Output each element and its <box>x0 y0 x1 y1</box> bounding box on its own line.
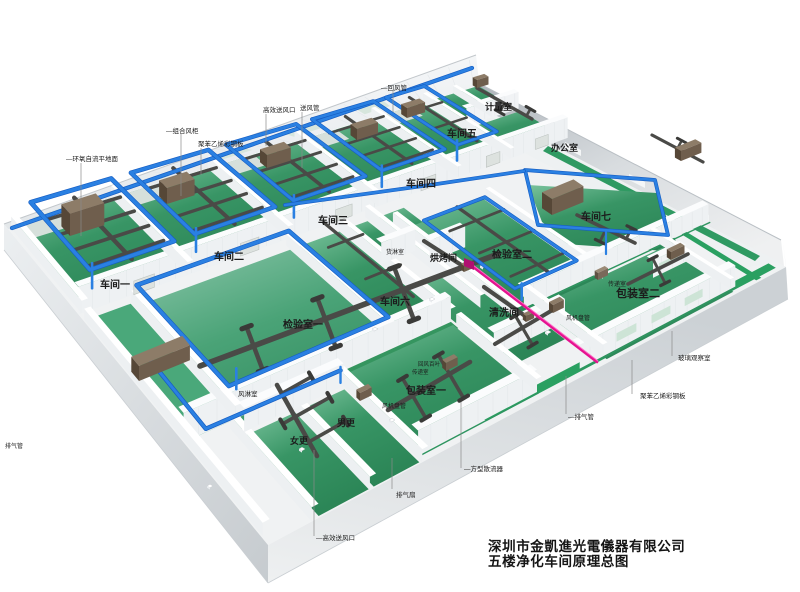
svg-text:车间二: 车间二 <box>214 250 244 263</box>
svg-text:深圳市金凱進光電儀器有限公司: 深圳市金凱進光電儀器有限公司 <box>488 538 685 554</box>
svg-text:—回风管: —回风管 <box>381 83 408 92</box>
svg-text:车间三: 车间三 <box>318 214 348 227</box>
svg-text:包装室二: 包装室二 <box>615 286 660 300</box>
svg-text:回风百叶: 回风百叶 <box>418 360 441 368</box>
svg-text:办公室: 办公室 <box>551 142 578 153</box>
svg-text:男更: 男更 <box>337 418 356 428</box>
svg-text:女更: 女更 <box>290 435 309 446</box>
svg-text:车间四: 车间四 <box>406 177 436 190</box>
svg-text:—排气管: —排气管 <box>568 412 595 421</box>
svg-text:检验室二: 检验室二 <box>492 248 532 261</box>
svg-text:风机盘管: 风机盘管 <box>382 402 406 410</box>
svg-text:排气扇: 排气扇 <box>396 490 416 499</box>
svg-text:包装室一: 包装室一 <box>406 384 446 397</box>
svg-text:风机盘管: 风机盘管 <box>566 314 590 322</box>
svg-text:烘烤间: 烘烤间 <box>430 252 457 263</box>
svg-text:车间六: 车间六 <box>380 295 410 308</box>
svg-text:传递室: 传递室 <box>608 280 626 288</box>
svg-text:排气管: 排气管 <box>5 442 23 450</box>
svg-text:车间五: 车间五 <box>447 127 477 140</box>
svg-text:货淋室: 货淋室 <box>386 248 404 256</box>
svg-text:风淋室: 风淋室 <box>238 389 258 398</box>
svg-text:计量室: 计量室 <box>485 101 512 112</box>
svg-text:玻璃观察室: 玻璃观察室 <box>678 353 711 362</box>
svg-text:五楼净化车间原理总图: 五楼净化车间原理总图 <box>488 553 629 569</box>
svg-text:—环氧自流平地面: —环氧自流平地面 <box>66 154 119 163</box>
svg-text:—组合风柜: —组合风柜 <box>166 126 199 135</box>
svg-text:高效送风口: 高效送风口 <box>263 105 296 114</box>
svg-text:聚苯乙烯彩钢板: 聚苯乙烯彩钢板 <box>640 391 686 400</box>
svg-text:车间七: 车间七 <box>581 210 611 223</box>
svg-text:—方型散流器: —方型散流器 <box>464 464 504 473</box>
svg-text:聚苯乙烯彩钢板: 聚苯乙烯彩钢板 <box>198 139 244 148</box>
svg-text:清洗间: 清洗间 <box>489 306 519 319</box>
svg-text:传递室: 传递室 <box>412 368 429 376</box>
svg-text:—高效送风口: —高效送风口 <box>316 533 355 542</box>
svg-text:送风管: 送风管 <box>300 103 320 112</box>
svg-text:检验室一: 检验室一 <box>283 318 323 331</box>
svg-text:车间一: 车间一 <box>100 278 130 291</box>
